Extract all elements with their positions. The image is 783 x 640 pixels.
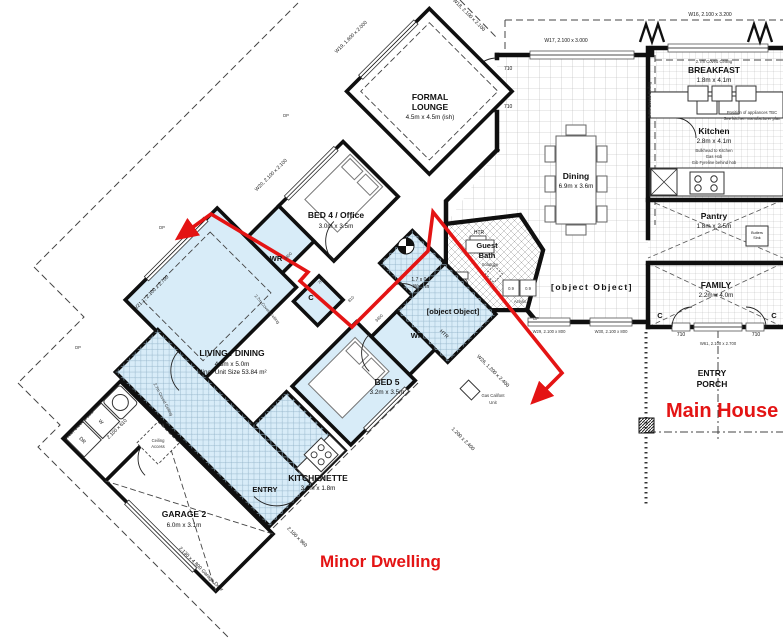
breakfast-name: BREAKFAST <box>688 65 741 75</box>
door-710-b: 710 <box>504 104 513 110</box>
gas-califont-2: Unit <box>489 400 497 405</box>
breakfast-coved-note: 2.7m Coved Ceiling <box>696 59 733 64</box>
kitchen-size: 2.8m x 4.1m <box>697 138 732 145</box>
door-710-a: 710 <box>504 66 513 72</box>
closet-c-label: C <box>308 293 314 302</box>
shower-dim-right: 0.9 <box>525 286 531 291</box>
main-house-title: Main House <box>666 400 778 422</box>
porch-name-2: PORCH <box>697 379 728 389</box>
butlers-sink-label-1: Butlers <box>751 231 763 235</box>
kitchenette-name: KITCHENETTE <box>288 473 348 483</box>
dp-b: DP <box>75 345 81 350</box>
door-810: 810 <box>347 294 356 303</box>
bed4-size: 3.0m x 3.5m <box>319 223 354 230</box>
ceiling-access-2: Access <box>151 444 165 449</box>
bed5-size: 3.2m x 3.5m <box>370 389 405 396</box>
breakfast-size: 1.8m x 4.1m <box>697 77 732 84</box>
garage-size: 6.0m x 3.1m <box>167 522 202 529</box>
appliance-note-1: Position of appliances TBC <box>727 110 777 115</box>
family-closet-left: C <box>657 311 663 320</box>
kitchen-note-3: Gib Fyreline behind hob <box>692 160 737 165</box>
family-size: 2.2m x 4.0m <box>699 292 734 299</box>
bed5-name: BED 5 <box>374 377 399 387</box>
ceiling-access-1: Ceiling <box>152 438 165 443</box>
dining-name: Dining <box>563 171 589 181</box>
minor-dwelling-title: Minor Dwelling <box>320 552 441 571</box>
living-note: Minor Unit Size 53.84 m² <box>197 369 266 376</box>
window-w27: 1.200 x 2.400 <box>450 426 476 452</box>
kitchen-note-1: Bulkhead to Kitchen <box>695 148 733 153</box>
guest-bath-name-1: Guest <box>476 241 498 250</box>
floor-plan-canvas: W DR Minor Dwelling Main House FORMAL LO… <box>0 0 783 640</box>
family-name: FAMILY <box>701 280 732 290</box>
dp-d: DP <box>283 113 289 118</box>
htr-guest-label: HTR <box>474 230 485 236</box>
kitchen-note-2: Gas Hob <box>706 154 723 159</box>
window-w16: W16, 2.100 x 3.200 <box>688 12 732 18</box>
pantry-name: Pantry <box>701 211 728 221</box>
floor-plan: W DR Minor Dwelling Main House FORMAL LO… <box>0 0 783 640</box>
walkin-dim: 1.7 x 0.9 <box>411 277 430 283</box>
family-closet-right: C <box>771 311 777 320</box>
dp-a: DP <box>159 225 165 230</box>
w-marks <box>640 24 772 42</box>
dim-3400-b: 3400 <box>374 312 385 323</box>
lounge-name-1: FORMAL <box>412 92 448 102</box>
wr1-label: WR <box>270 254 283 263</box>
window-w61: W61, 2.100 x 2.700 <box>700 341 737 346</box>
porch-post <box>639 418 654 433</box>
window-w29: W29, 2.100 x 800 <box>533 329 566 334</box>
acrylic-label: Acrylic <box>514 299 526 304</box>
dp-c: DP <box>533 316 539 321</box>
shower-dim-left: 0.9 <box>508 286 514 291</box>
window-w25: 2.100 x 960 <box>285 526 308 549</box>
pantry-size: 1.8m x 2.5m <box>697 223 732 230</box>
living-size: 4.3m x 5.0m <box>215 361 250 368</box>
solatube-label: Solatube <box>482 262 499 267</box>
kitchenette-size: 3.2m x 1.8m <box>301 485 336 492</box>
window-w26: W26, 1.200 x 2.400 <box>475 354 510 389</box>
walkin-label: Walk In <box>413 284 430 290</box>
dining-size: 6.9m x 3.6m <box>559 183 594 190</box>
bed4-name: BED 4 / Office <box>308 210 364 220</box>
breakfast-coved-vertical: 2.7m Coved Ceiling <box>647 81 652 118</box>
window-w30: W30, 2.100 x 800 <box>595 329 628 334</box>
porch-name-1: ENTRY <box>698 368 727 378</box>
window-w18: W18, 2.100 x 2.100 <box>451 0 486 33</box>
window-w19: W19, 1.600 x 2.000 <box>334 20 369 55</box>
window-w20: W20, 2.100 x 2.100 <box>254 158 289 193</box>
appliance-note-2: See kitchen manufacturer plan <box>724 116 781 121</box>
ens4-label: [object Object] <box>427 307 480 316</box>
entry-name: ENTRY <box>252 485 277 494</box>
datum-symbol <box>398 238 414 254</box>
lounge-size: 4.5m x 4.5m (ish) <box>406 114 455 121</box>
gas-califont-unit-box <box>460 380 480 400</box>
lounge-name-2: LOUNGE <box>412 102 449 112</box>
gallery-name: [object Object] <box>551 282 633 292</box>
guest-bath-name-2: Bath <box>479 251 496 260</box>
garage-name: GARAGE 2 <box>162 509 207 519</box>
wr2-label: WR <box>411 331 424 340</box>
door-710-d: 710 <box>752 332 761 338</box>
living-name: LIVING / DINING <box>199 348 265 358</box>
door-710-c: 710 <box>677 332 686 338</box>
gas-califont-1: Gas Califont <box>481 393 505 398</box>
kitchen-name: Kitchen <box>698 126 729 136</box>
butlers-sink-label-2: Sink <box>753 236 760 240</box>
window-w17: W17, 2.100 x 3.000 <box>544 38 588 44</box>
